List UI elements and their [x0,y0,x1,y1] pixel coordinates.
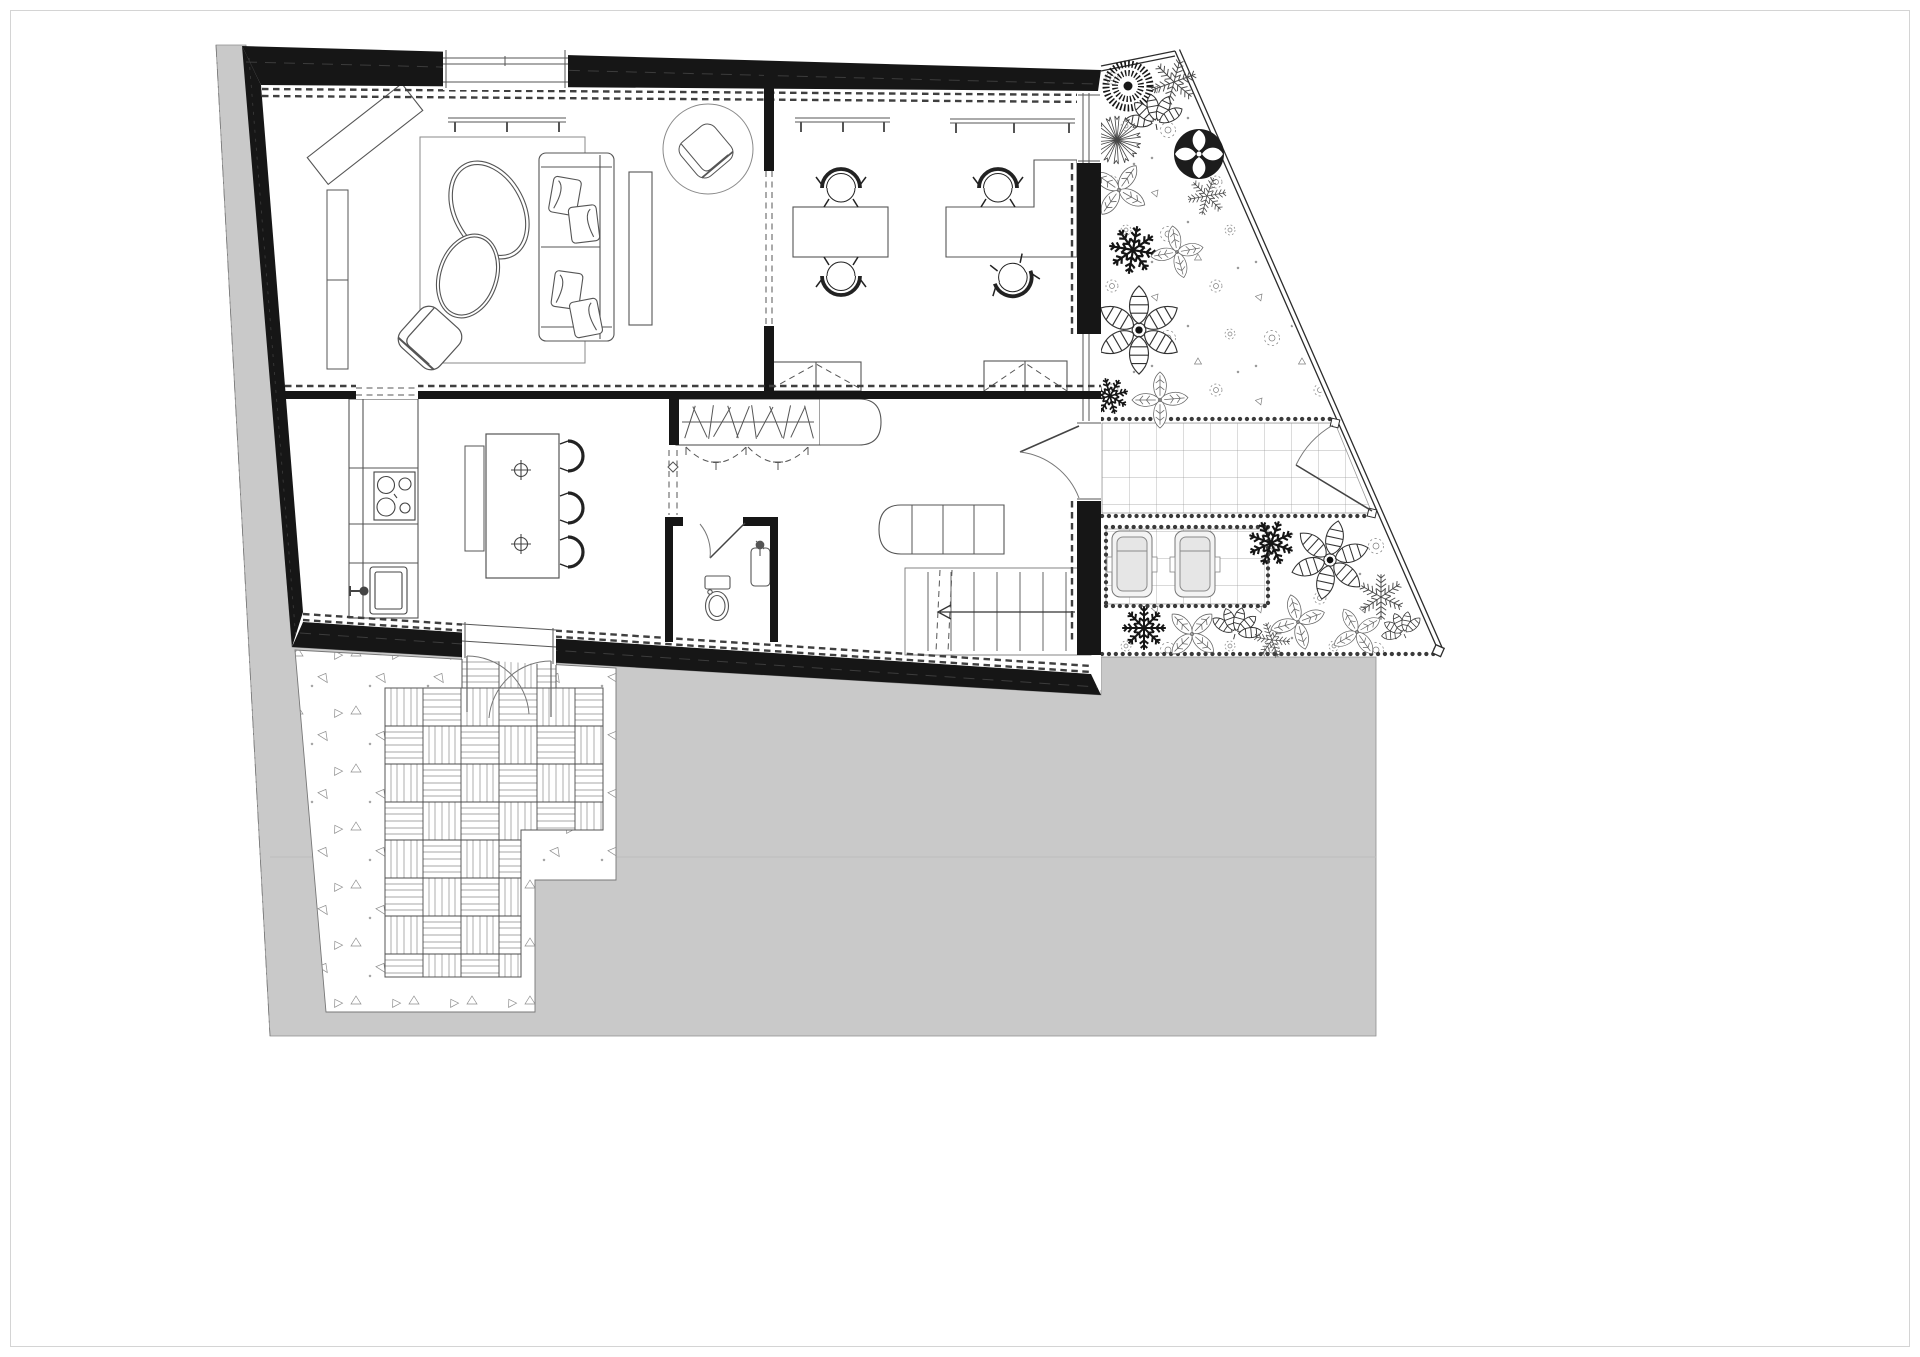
darkstar-plant [1122,606,1166,650]
wardrobe [676,399,881,445]
living-window [443,48,568,90]
wall-bookshelf [327,190,348,369]
stair-bench [879,505,1004,554]
sun-lounger [1170,531,1220,597]
sofa [539,153,614,341]
top-wall [242,46,1101,91]
roundtree-plant [1174,129,1224,179]
washbasin [751,541,770,586]
tiled-entry-path [1102,423,1372,513]
cooktop [374,472,415,520]
toilet [705,576,730,621]
island [486,434,559,578]
floor-plan-drawing [0,0,1920,1357]
desk-1 [793,207,888,257]
garden-glass-door [1077,334,1101,421]
floor-plan-page [0,0,1920,1357]
garden [1080,50,1444,674]
media-board [629,172,652,325]
sun-lounger [1107,531,1157,597]
office-window [1077,93,1101,163]
staircase [905,568,1091,655]
island-bench [465,446,484,551]
